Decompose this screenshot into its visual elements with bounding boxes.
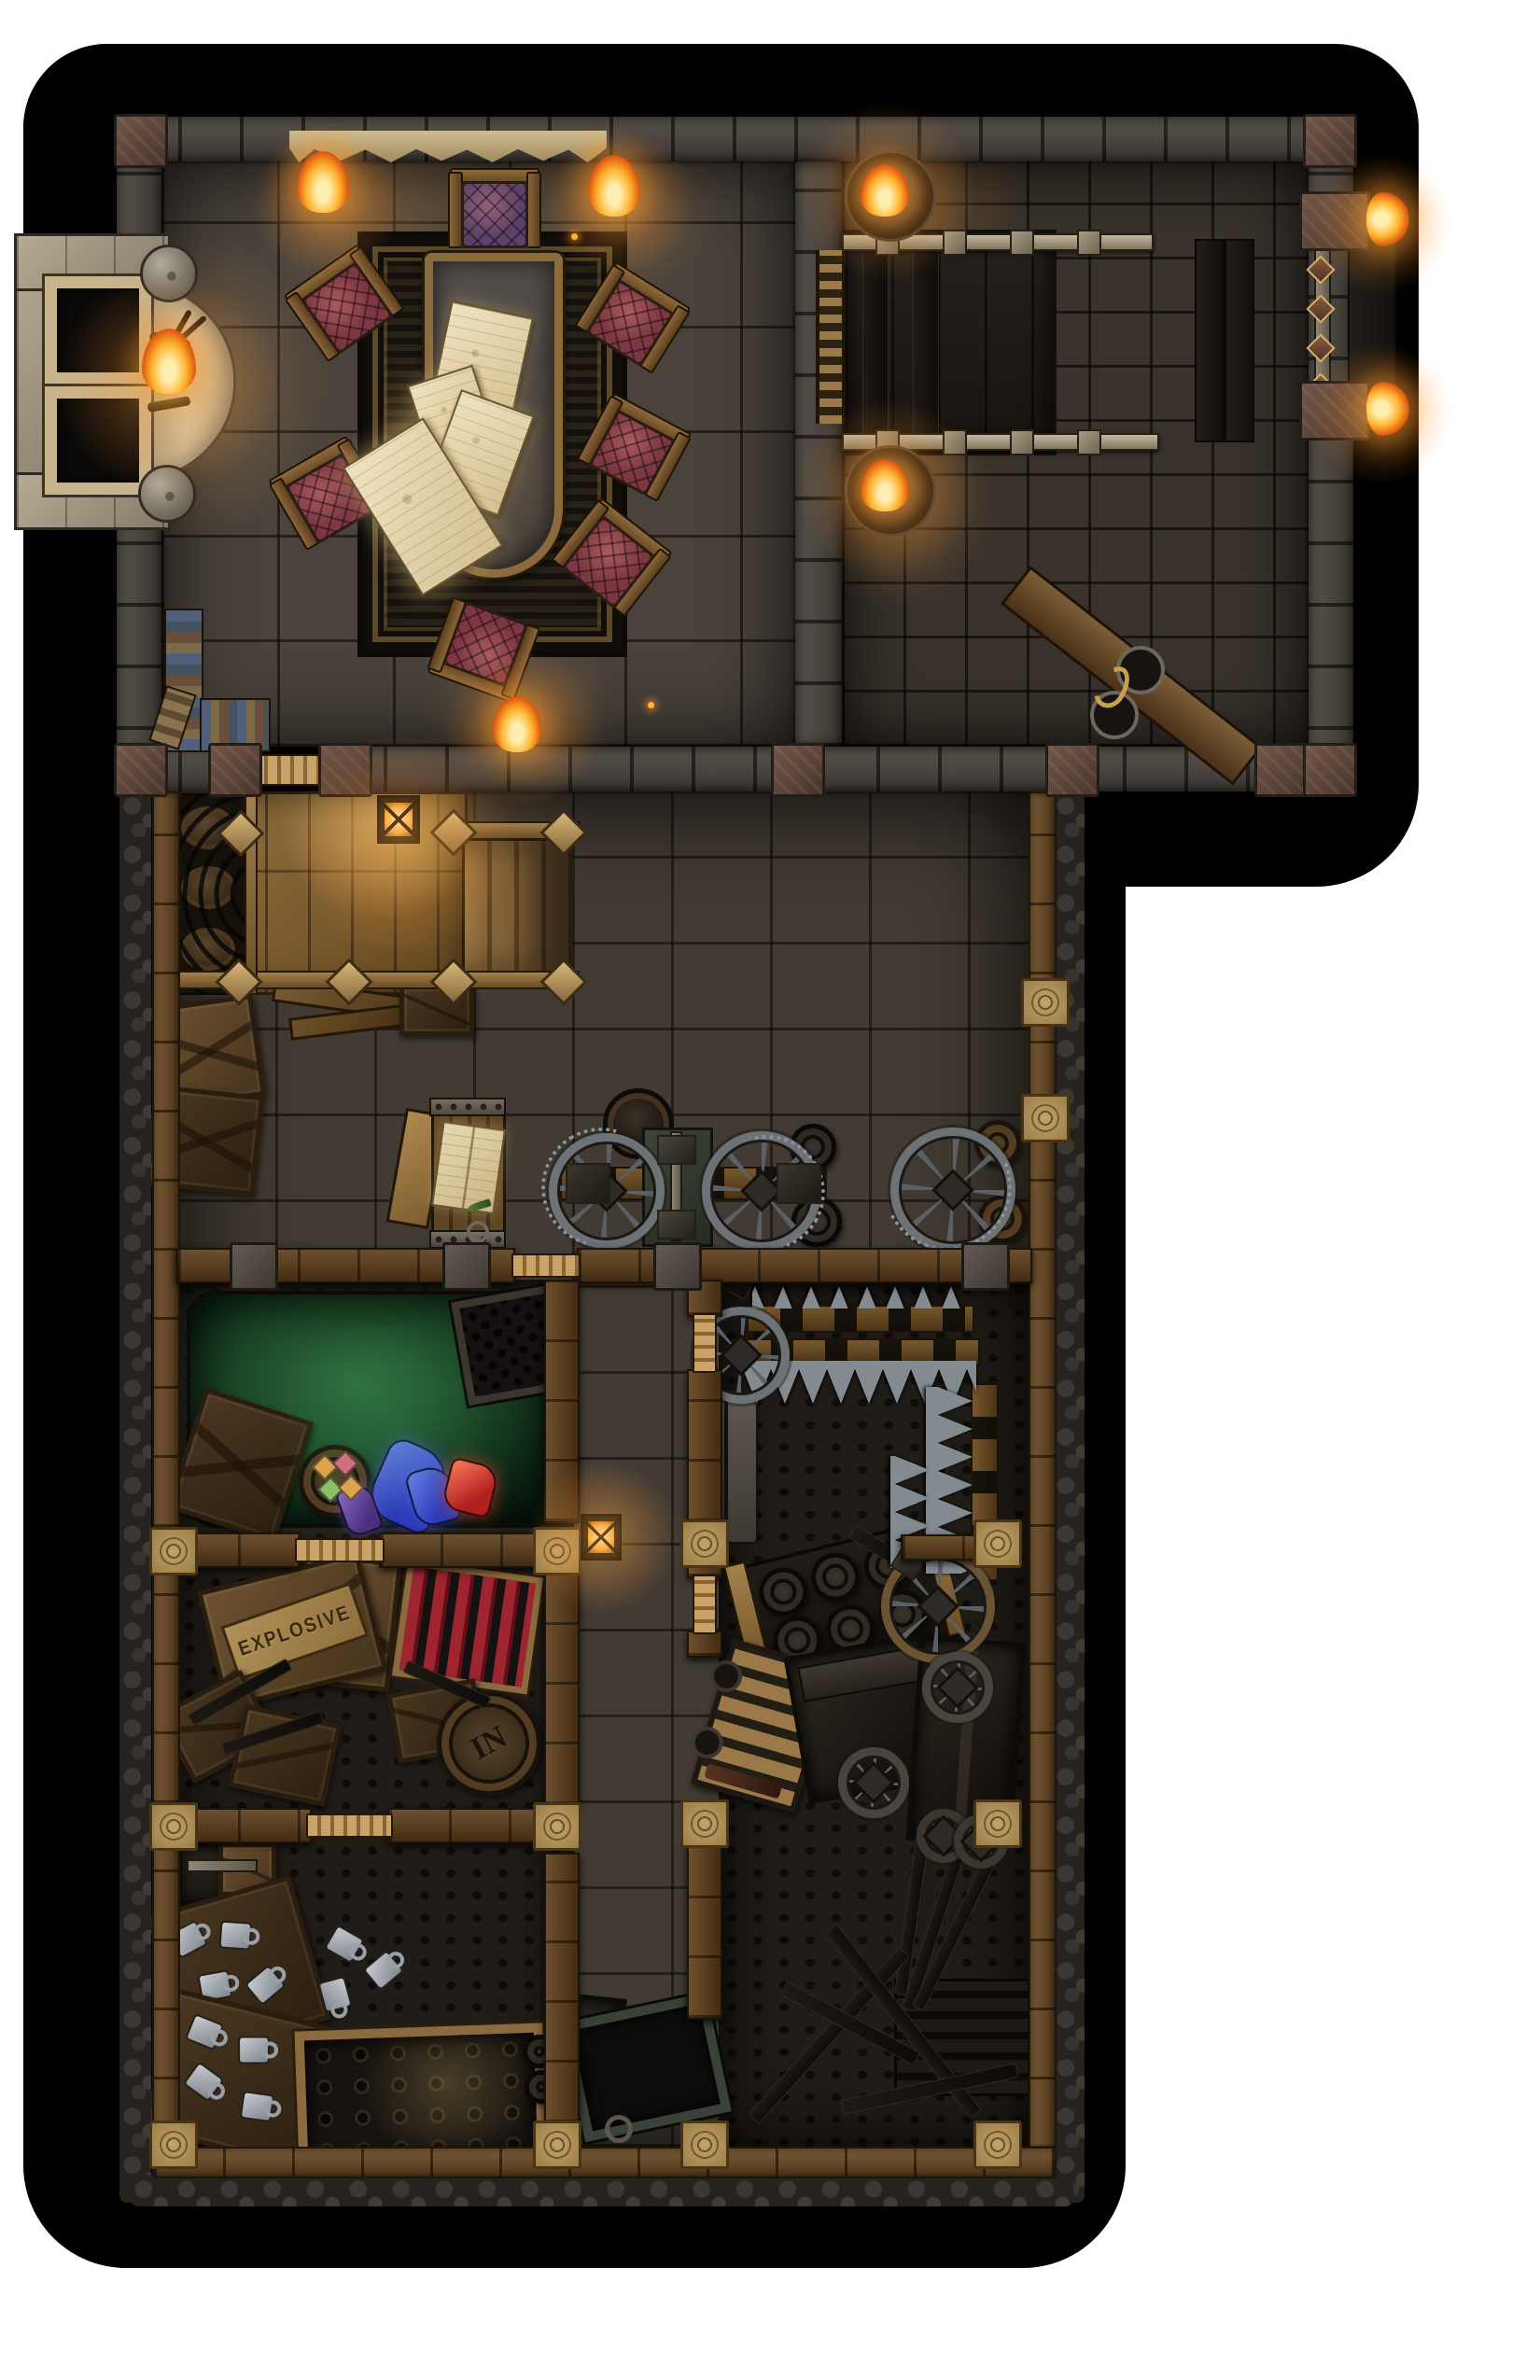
- wall-junction-block: [973, 1799, 1022, 1848]
- wall-ladder: [816, 250, 846, 424]
- wall-junction-block: [973, 1519, 1022, 1568]
- lion-statue: [138, 465, 196, 523]
- door: [693, 1575, 717, 1634]
- lion-statue: [140, 245, 198, 302]
- raised-gate-slab: [1348, 233, 1396, 403]
- door: [693, 1313, 717, 1373]
- interior-wall: [544, 1570, 580, 1806]
- desk-metal-cap: [429, 1098, 506, 1116]
- wall-junction-block: [149, 2121, 198, 2169]
- spike-row-icon: [752, 1286, 965, 1309]
- rail-clamp: [943, 429, 967, 455]
- outer-rubble: [131, 2175, 1073, 2206]
- iron-slab: [1195, 239, 1225, 442]
- chimney-vent: [45, 276, 151, 385]
- wall-junction-block: [680, 2121, 729, 2169]
- corner-keystone: [114, 114, 168, 168]
- wall-post: [442, 1242, 491, 1291]
- wall-junction-block: [680, 1519, 729, 1568]
- corner-keystone: [208, 743, 262, 797]
- rail-clamp: [1010, 230, 1034, 256]
- interior-wall-stub: [901, 1534, 977, 1561]
- corner-keystone: [318, 743, 372, 797]
- rail-clamp: [1010, 429, 1034, 455]
- key-ring-icon: [467, 1221, 489, 1243]
- interior-wall: [544, 1853, 580, 2124]
- beam-shackle: [777, 1163, 821, 1204]
- battle-map: EXPLOSIVE IN: [0, 0, 1540, 2380]
- interior-wall: [379, 1533, 548, 1568]
- interior-wall: [387, 1808, 548, 1843]
- outer-rubble: [119, 791, 151, 2203]
- door: [306, 1813, 393, 1838]
- ember-spark: [648, 702, 654, 708]
- corner-keystone: [1303, 743, 1357, 797]
- wall-junction-block: [149, 1527, 198, 1575]
- head-chair: [455, 175, 534, 254]
- corner-keystone: [114, 743, 168, 797]
- wall-post: [961, 1242, 1010, 1291]
- barrel-marking: IN: [465, 1719, 512, 1767]
- pit-bar: [862, 245, 889, 437]
- stone-slab: [726, 1398, 758, 1544]
- open-ledger: [431, 1121, 506, 1215]
- corner-keystone: [1254, 743, 1309, 797]
- west-wood-wall: [152, 791, 180, 2150]
- south-wood-wall: [152, 2147, 1057, 2178]
- staircase: [462, 838, 572, 976]
- chimney-vent: [45, 386, 151, 495]
- marked-barrel: IN: [437, 1691, 541, 1796]
- wall-junction-block: [533, 1527, 581, 1575]
- ring-handle-icon: [605, 2115, 633, 2143]
- pit-bar: [913, 245, 939, 437]
- rail-clamp: [1077, 230, 1101, 256]
- corner-lantern: [581, 1514, 622, 1561]
- wall-junction-block: [973, 2121, 1022, 2169]
- door: [511, 1253, 581, 1278]
- corner-keystone: [771, 743, 825, 797]
- torch-sconce-block: [1299, 191, 1370, 251]
- wall-junction-block: [149, 1802, 198, 1851]
- beam-shackle: [566, 1163, 610, 1204]
- corner-keystone: [1045, 743, 1099, 797]
- wall-post: [653, 1242, 702, 1291]
- wall-junction-block: [1021, 1094, 1070, 1142]
- rack-clamp: [657, 1210, 696, 1239]
- door: [295, 1538, 385, 1562]
- wall-junction-block: [680, 1799, 729, 1848]
- cart-wheel: [922, 1652, 993, 1723]
- interior-wall: [687, 1369, 722, 1523]
- ember-spark: [571, 233, 578, 240]
- rail-clamp: [1077, 429, 1101, 455]
- interior-wall: [687, 1631, 722, 1658]
- wall-post: [230, 1242, 278, 1291]
- press-handle: [187, 1859, 258, 1872]
- wall-junction-block: [1021, 978, 1070, 1027]
- interior-wall: [687, 1842, 722, 2020]
- cart-wheel: [838, 1747, 909, 1818]
- wall-junction-block: [533, 1802, 581, 1851]
- hanging-lantern: [377, 795, 420, 844]
- interior-wall: [544, 1280, 580, 1523]
- rack-clamp: [657, 1135, 696, 1165]
- torch-sconce-block: [1299, 381, 1370, 441]
- wall-junction-block: [533, 2121, 581, 2169]
- rail-clamp: [943, 230, 967, 256]
- iron-slab: [1225, 239, 1254, 442]
- corner-keystone: [1303, 114, 1357, 168]
